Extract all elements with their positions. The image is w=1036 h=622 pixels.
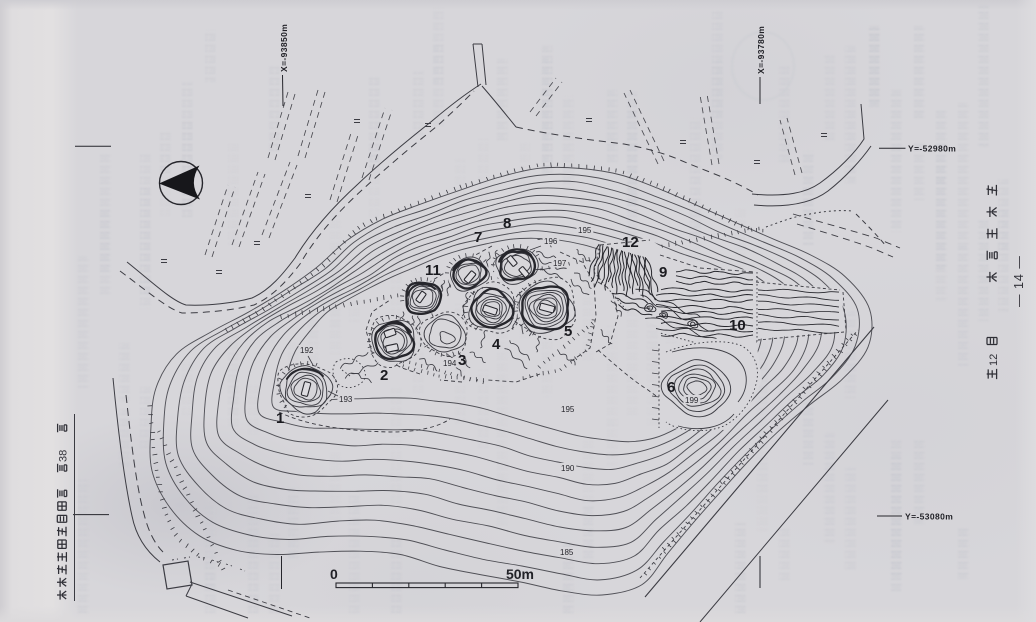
svg-text:195: 195 bbox=[578, 226, 592, 235]
svg-text:1: 1 bbox=[276, 410, 284, 427]
svg-text:10: 10 bbox=[729, 317, 746, 334]
svg-text:6: 6 bbox=[667, 379, 675, 396]
svg-text:193: 193 bbox=[339, 395, 353, 404]
svg-text:8: 8 bbox=[503, 215, 511, 232]
svg-text:192: 192 bbox=[300, 346, 314, 355]
svg-text:5: 5 bbox=[564, 323, 572, 340]
svg-text:4: 4 bbox=[492, 336, 501, 353]
svg-text:9: 9 bbox=[659, 264, 667, 281]
svg-text:— 14 —: — 14 — bbox=[1012, 255, 1026, 307]
svg-text:11: 11 bbox=[425, 262, 441, 279]
svg-text:Y=-52980m: Y=-52980m bbox=[908, 144, 956, 154]
svg-text:0: 0 bbox=[330, 566, 338, 582]
svg-text:X=-93780m: X=-93780m bbox=[756, 26, 766, 74]
svg-text:12: 12 bbox=[622, 234, 639, 251]
svg-text:185: 185 bbox=[560, 548, 574, 557]
svg-text:7: 7 bbox=[474, 229, 482, 246]
svg-text:196: 196 bbox=[544, 237, 558, 246]
svg-text:12: 12 bbox=[988, 354, 1000, 366]
svg-text:194: 194 bbox=[443, 359, 457, 368]
svg-text:Y=-53080m: Y=-53080m bbox=[905, 512, 953, 522]
svg-text:197: 197 bbox=[553, 259, 567, 268]
svg-text:199: 199 bbox=[685, 396, 699, 405]
svg-text:38: 38 bbox=[58, 450, 70, 462]
svg-text:X=-93850m: X=-93850m bbox=[279, 24, 289, 72]
svg-text:3: 3 bbox=[458, 352, 466, 369]
svg-text:2: 2 bbox=[380, 367, 388, 384]
svg-text:50m: 50m bbox=[506, 566, 534, 582]
svg-text:195: 195 bbox=[561, 405, 575, 414]
svg-text:190: 190 bbox=[561, 464, 575, 473]
